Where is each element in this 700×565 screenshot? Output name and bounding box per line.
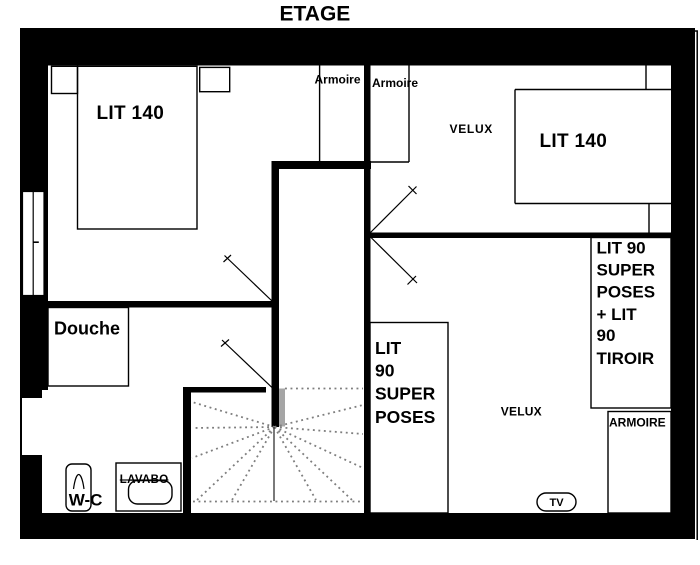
svg-text:90: 90 xyxy=(597,326,616,345)
svg-text:W-C: W-C xyxy=(69,491,103,510)
svg-text:Armoire: Armoire xyxy=(315,73,361,87)
svg-text:LIT 90: LIT 90 xyxy=(597,239,646,258)
svg-text:LIT: LIT xyxy=(375,338,402,358)
svg-text:VELUX: VELUX xyxy=(501,405,542,419)
svg-text:POSES: POSES xyxy=(597,283,656,302)
svg-text:SUPER: SUPER xyxy=(375,384,436,404)
svg-text:ETAGE: ETAGE xyxy=(280,3,351,26)
svg-text:POSES: POSES xyxy=(375,407,435,427)
svg-text:TIROIR: TIROIR xyxy=(597,349,655,368)
svg-text:90: 90 xyxy=(375,361,395,381)
svg-text:LIT 140: LIT 140 xyxy=(540,131,608,152)
svg-text:SUPER: SUPER xyxy=(597,261,656,280)
svg-text:LIT 140: LIT 140 xyxy=(97,103,165,124)
svg-text:Armoire: Armoire xyxy=(372,76,418,90)
svg-text:VELUX: VELUX xyxy=(450,122,494,136)
svg-text:TV: TV xyxy=(549,497,564,509)
svg-text:+ LIT: + LIT xyxy=(597,305,638,324)
svg-text:Douche: Douche xyxy=(54,319,120,339)
svg-text:ARMOIRE: ARMOIRE xyxy=(609,416,666,430)
svg-text:LAVABO: LAVABO xyxy=(120,474,169,486)
